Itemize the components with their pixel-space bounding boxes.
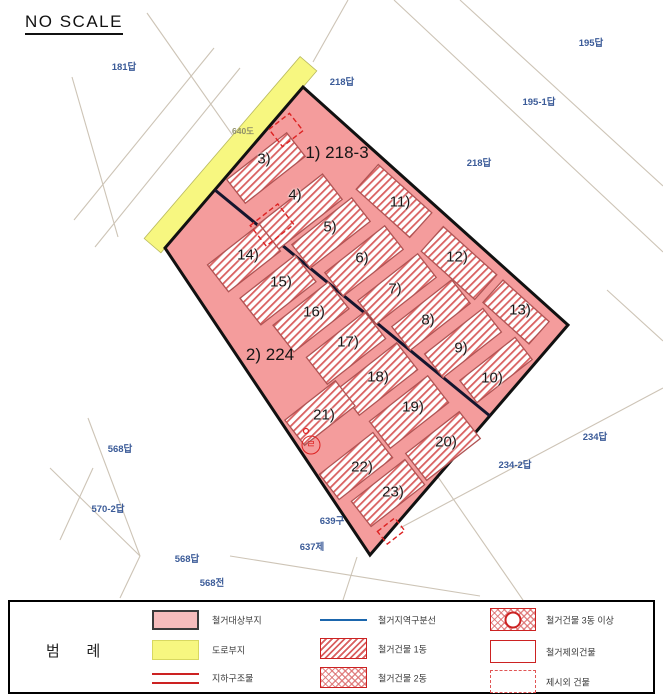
legend-label-building-1: 철거건물 1동 [378,643,427,656]
boundary-line-1 [72,77,118,237]
legend-label-building-3plus: 철거건물 3동 이상 [546,614,614,627]
boundary-line-13 [120,556,140,598]
cadastral-drawing-page: NO SCALE 181답218답195답195-1답218답640도234답2… [0,0,663,700]
legend-swatch-building-3plus [490,608,536,631]
legend-circle-icon [505,611,522,628]
legend-label-underground: 지하구조물 [212,672,253,685]
boundary-line-12 [50,468,140,556]
legend-swatch-road [152,640,199,660]
legend-swatch-building-1 [320,638,367,659]
boundary-line-4 [460,0,663,186]
legend-swatch-underground-line2 [152,682,199,684]
legend-label-site: 철거대상부지 [212,614,262,627]
legend-swatch-building-2 [320,667,367,688]
legend-label-division-line: 철거지역구분선 [378,614,436,627]
cadastral-map-canvas [0,0,663,700]
boundary-line-9 [436,474,523,600]
legend-label-excluded-building: 철거제외건물 [546,646,596,659]
legend-box: 범 례 철거대상부지 도로부지 지하구조물 철거지역구분선 철거건물 1동 철거… [8,600,655,694]
boundary-line-14 [343,557,357,600]
boundary-line-6 [313,0,348,62]
legend-label-road: 도로부지 [212,644,245,657]
legend-swatch-site [152,610,199,630]
boundary-line-11 [88,418,140,556]
site-shapes [144,57,568,555]
legend-label-unregistered-building: 제시외 건물 [546,676,590,689]
boundary-line-7 [607,290,663,341]
legend-title: 범 례 [46,640,102,661]
legend-label-building-2: 철거건물 2동 [378,672,427,685]
legend-swatch-division-line [320,619,367,621]
legend-swatch-underground-line1 [152,673,199,675]
legend-swatch-unregistered-building [490,670,536,693]
boundary-line-15 [60,468,93,540]
legend-swatch-excluded-building [490,640,536,663]
